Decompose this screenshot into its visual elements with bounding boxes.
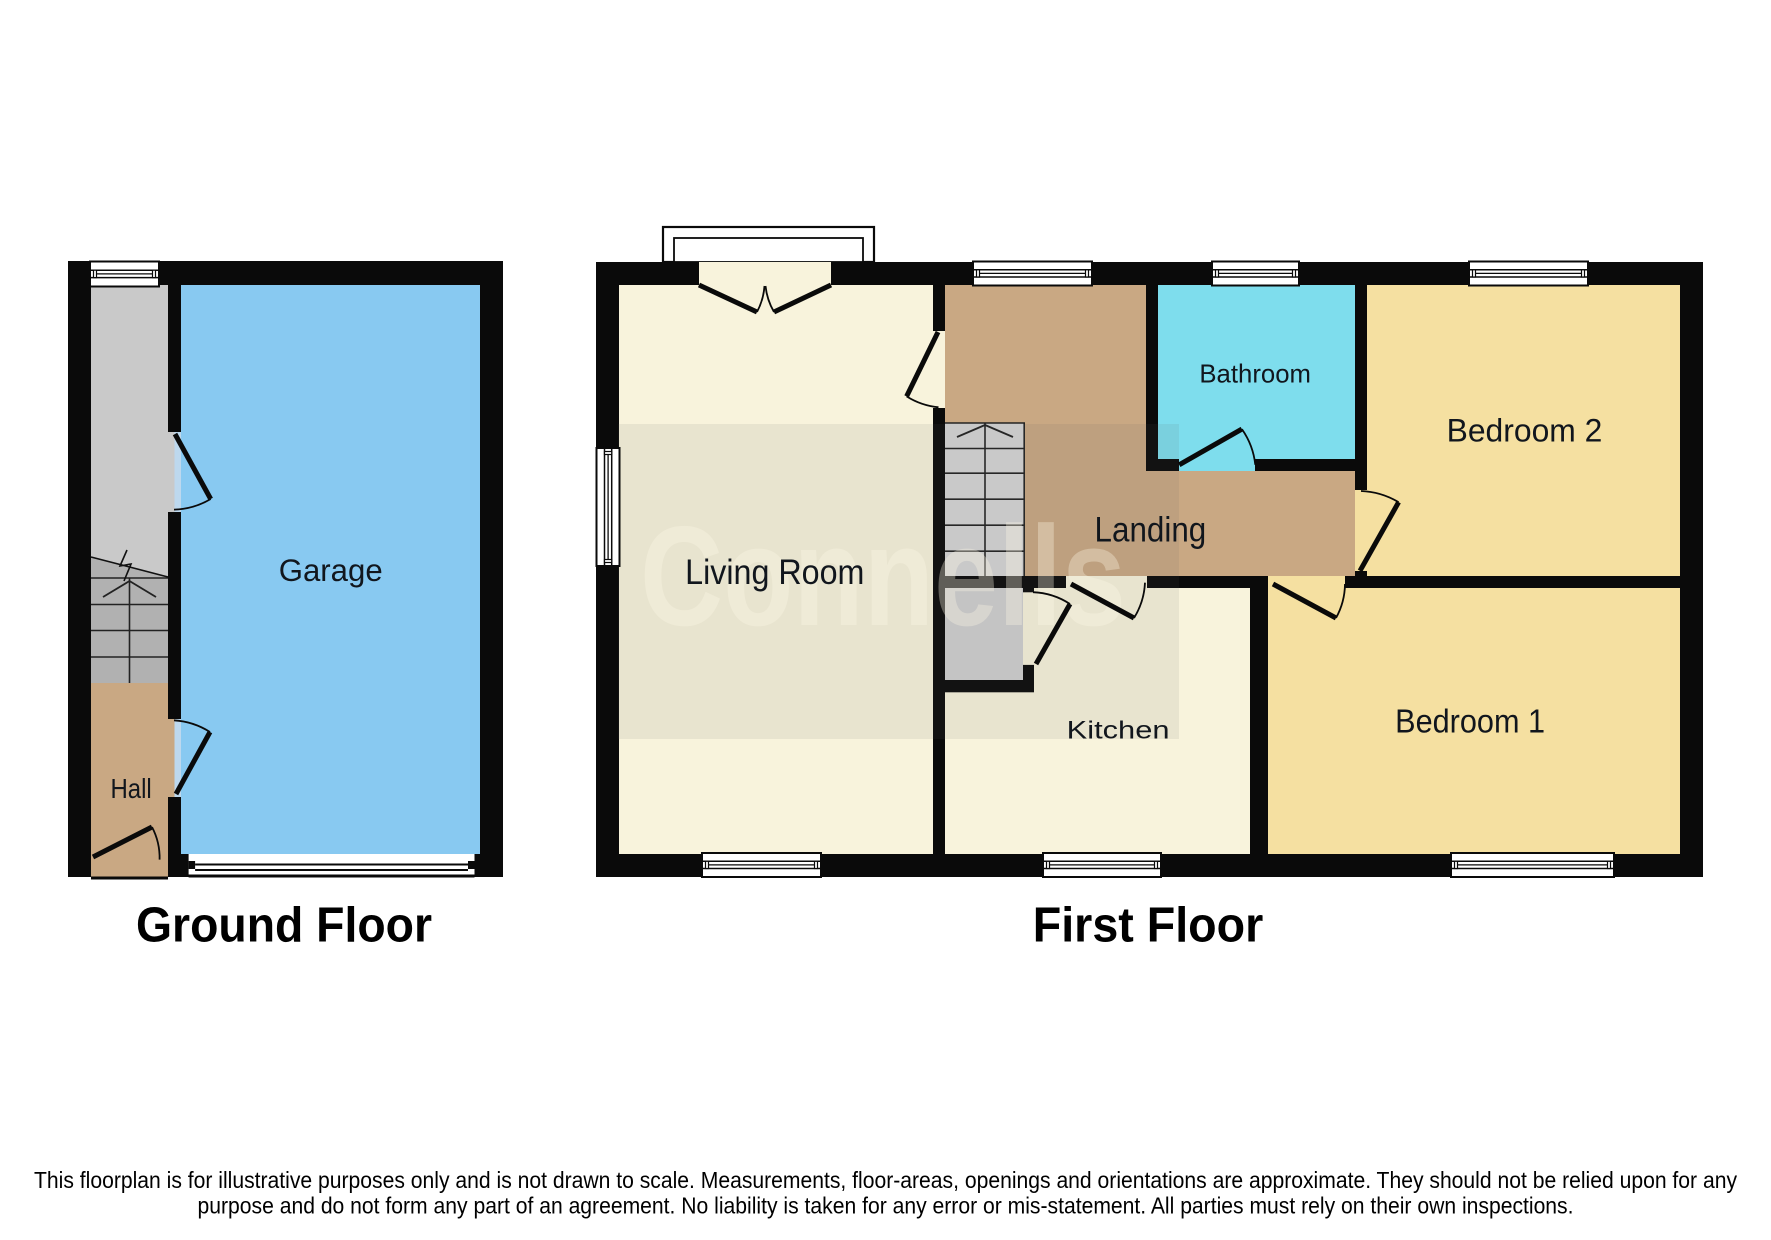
svg-text:Kitchen: Kitchen <box>1067 717 1170 745</box>
svg-text:First Floor: First Floor <box>1033 899 1264 953</box>
svg-text:Bedroom 1: Bedroom 1 <box>1395 704 1545 741</box>
svg-text:Bathroom: Bathroom <box>1199 359 1311 389</box>
svg-text:Garage: Garage <box>279 552 383 588</box>
svg-text:Hall: Hall <box>110 773 151 804</box>
svg-text:Living Room: Living Room <box>685 552 864 592</box>
svg-text:Landing: Landing <box>1095 510 1207 550</box>
svg-text:This floorplan is for illustra: This floorplan is for illustrative purpo… <box>34 1167 1737 1193</box>
svg-text:purpose and do not form any pa: purpose and do not form any part of an a… <box>198 1193 1574 1219</box>
svg-text:Ground Floor: Ground Floor <box>136 899 432 953</box>
svg-text:Bedroom 2: Bedroom 2 <box>1447 412 1603 448</box>
